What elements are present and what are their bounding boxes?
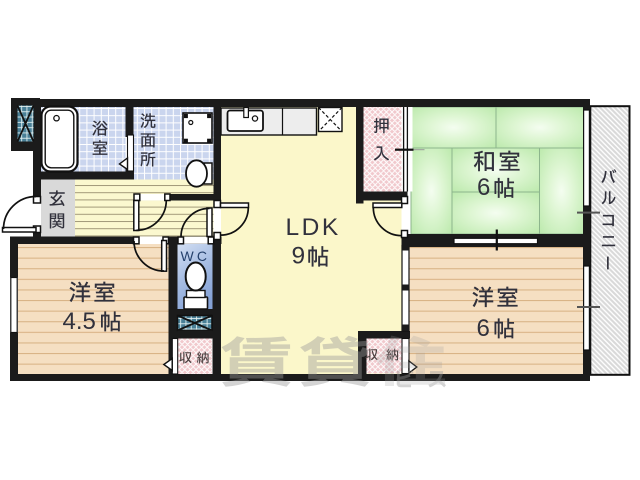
svg-text:WC: WC	[181, 248, 211, 264]
svg-text:9: 9	[292, 243, 306, 270]
svg-text:LDK: LDK	[286, 214, 341, 241]
svg-text:6: 6	[477, 315, 490, 342]
svg-text:4.5: 4.5	[63, 308, 96, 335]
svg-text:6: 6	[477, 174, 490, 201]
